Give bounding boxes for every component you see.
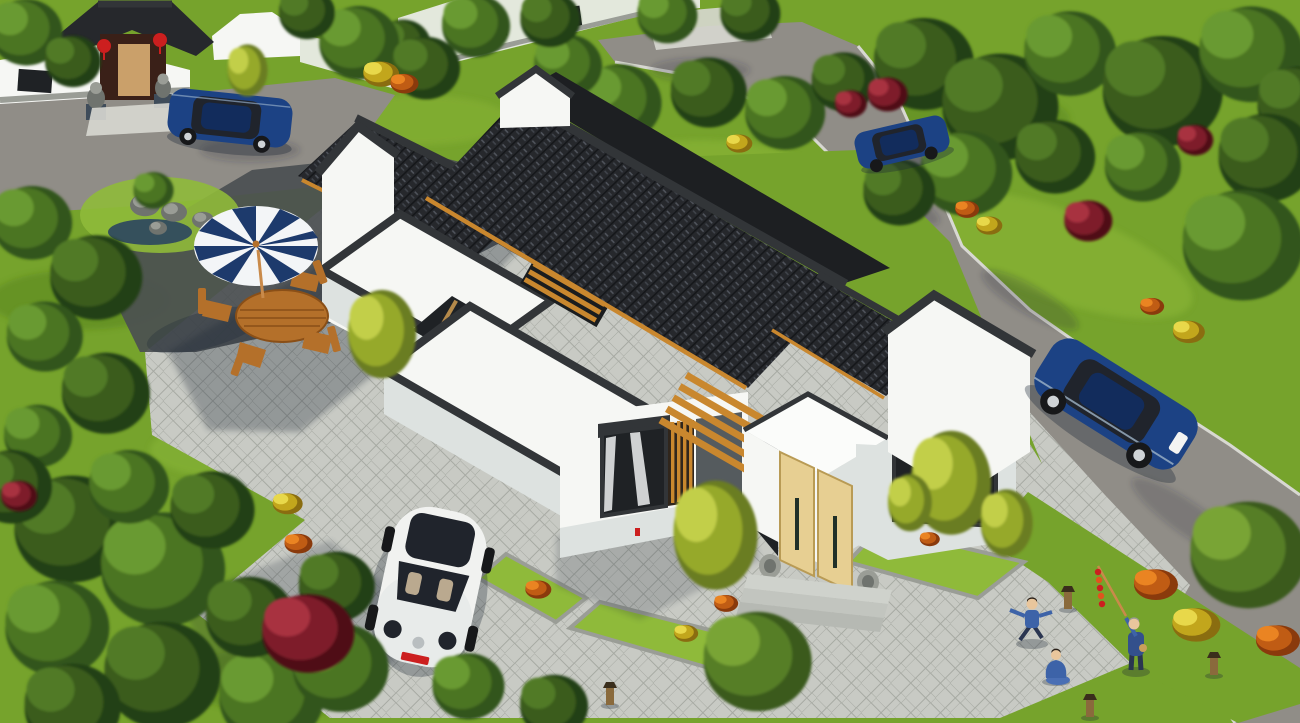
wall-lamp xyxy=(635,528,640,536)
tree-mid xyxy=(1105,132,1181,202)
tree-dark xyxy=(62,353,150,434)
flower-bush-red xyxy=(262,594,354,672)
flower-bush-yellow xyxy=(1173,321,1205,343)
flower-bush-red xyxy=(1,481,37,512)
bamboo-clumpbamboo xyxy=(348,290,416,378)
flower-bush-yellow xyxy=(273,493,303,514)
tree-mid xyxy=(89,450,169,524)
flower-bush-yellow xyxy=(1172,608,1220,642)
rock xyxy=(149,221,167,235)
door-handle-right xyxy=(833,516,837,568)
moon-gate-view xyxy=(118,44,150,96)
bamboo-clumpbamboo xyxy=(674,480,758,589)
flower-bush-red xyxy=(1177,125,1213,156)
parasol-finial xyxy=(253,241,260,248)
flower-bush-yellow xyxy=(674,625,698,642)
flower-bush-orange xyxy=(285,534,313,554)
tree-mid xyxy=(432,653,504,719)
flower-bush-red xyxy=(868,77,908,111)
flower-bush-red xyxy=(1064,200,1112,241)
flower-bush-red xyxy=(835,90,867,117)
flower-bush-orange xyxy=(714,595,738,612)
tree-dark xyxy=(45,36,101,88)
flower-bush-orange xyxy=(1140,298,1164,315)
bamboo-clumpbamboo xyxy=(228,44,268,96)
bamboo-clumpbamboo xyxy=(888,474,932,531)
pond xyxy=(108,219,192,245)
tree-mid xyxy=(1024,11,1116,96)
flower-bush-orange xyxy=(1256,625,1300,656)
rendering-canvas xyxy=(0,0,1300,723)
flower-bush-orange xyxy=(525,580,551,598)
tree-dark xyxy=(671,58,747,128)
lattice-window xyxy=(17,69,52,93)
willow-treewillow xyxy=(704,612,812,711)
flower-bush-orange xyxy=(1134,569,1178,600)
flower-bush-orange xyxy=(920,532,940,546)
door-handle-left xyxy=(795,498,799,550)
satchel xyxy=(1139,644,1147,652)
bamboo-clumpbamboo xyxy=(981,489,1033,557)
flower-bush-yellow xyxy=(726,134,752,152)
aerial-house-rendering xyxy=(0,0,1300,723)
tree-mid xyxy=(1183,190,1300,300)
tree-mid xyxy=(5,580,109,676)
tree-dark xyxy=(1015,120,1095,194)
flower-bush-yellow xyxy=(976,216,1002,234)
tree-mid xyxy=(7,302,83,372)
tree-dark xyxy=(171,471,255,548)
tree-mid xyxy=(134,172,174,209)
flower-bush-orange xyxy=(391,74,419,94)
flower-bush-orange xyxy=(955,201,979,218)
